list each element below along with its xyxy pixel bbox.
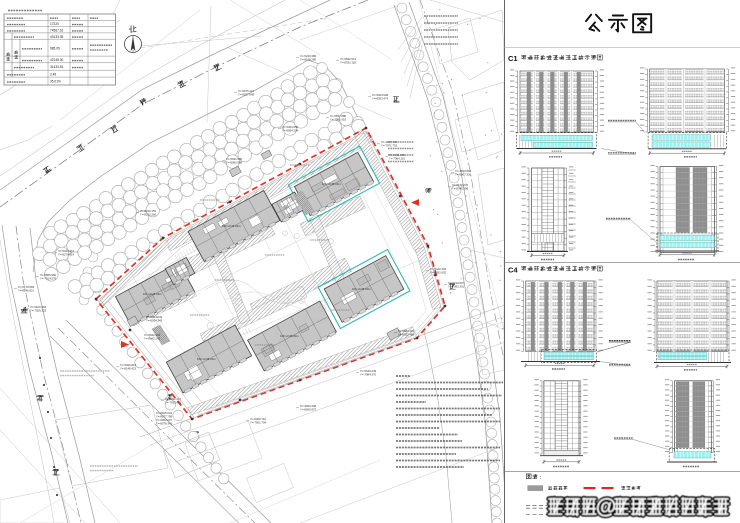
svg-text:Y=-8303.474: Y=-8303.474 bbox=[372, 96, 389, 100]
svg-text:Y=-7981.916: Y=-7981.916 bbox=[330, 117, 347, 121]
svg-text:Y=-8279.914: Y=-8279.914 bbox=[58, 252, 75, 256]
svg-text:Y=-7933.463: Y=-7933.463 bbox=[165, 400, 182, 404]
svg-text:16F H=45.00m: 16F H=45.00m bbox=[222, 224, 241, 228]
svg-text:Y=-8346.396: Y=-8346.396 bbox=[452, 186, 469, 190]
svg-text:Y=-7929.123: Y=-7929.123 bbox=[30, 308, 47, 312]
svg-text:Y=-7964.101: Y=-7964.101 bbox=[389, 156, 406, 160]
svg-text:Y=-8007.320: Y=-8007.320 bbox=[455, 172, 472, 176]
svg-text:Y=-8042.243: Y=-8042.243 bbox=[144, 336, 161, 340]
svg-text:16F H=45.00m: 16F H=45.00m bbox=[143, 292, 162, 296]
svg-text:Y=-8090.989: Y=-8090.989 bbox=[226, 160, 243, 164]
svg-text:2.45: 2.45 bbox=[50, 72, 56, 76]
svg-text:74567.16: 74567.16 bbox=[50, 29, 64, 33]
svg-text:Y=-8069.937: Y=-8069.937 bbox=[300, 407, 317, 411]
svg-text:Y=-7971.732: Y=-7971.732 bbox=[381, 143, 398, 147]
svg-text:Y=-7914.576: Y=-7914.576 bbox=[40, 276, 57, 280]
svg-text:Y=-8146.821: Y=-8146.821 bbox=[18, 288, 35, 292]
svg-text:Y=-7993.301: Y=-7993.301 bbox=[448, 284, 465, 288]
svg-text:Y=-8108.286: Y=-8108.286 bbox=[300, 57, 317, 61]
svg-text:17220: 17220 bbox=[50, 22, 59, 26]
svg-text:985.05: 985.05 bbox=[50, 46, 60, 50]
svg-text:16F H=45.00m: 16F H=45.00m bbox=[280, 334, 299, 338]
svg-text:Y=-8232.260: Y=-8232.260 bbox=[140, 212, 157, 216]
svg-text:Y=-8052.469: Y=-8052.469 bbox=[398, 332, 415, 336]
svg-text:Y=-8146.423: Y=-8146.423 bbox=[120, 366, 137, 370]
svg-text:16F H=45.00m: 16F H=45.00m bbox=[352, 287, 371, 291]
svg-text:35.01%: 35.01% bbox=[50, 80, 61, 84]
svg-text:Y=-8094.204: Y=-8094.204 bbox=[282, 128, 299, 132]
svg-text:Y=-8392.652: Y=-8392.652 bbox=[430, 270, 447, 274]
svg-text:Y=-8027.848: Y=-8027.848 bbox=[238, 92, 255, 96]
svg-text:C1: C1 bbox=[508, 54, 518, 63]
svg-text:C4: C4 bbox=[508, 266, 518, 275]
svg-text:Y=-8078.341: Y=-8078.341 bbox=[156, 421, 173, 425]
svg-text:16F H=45.00m: 16F H=45.00m bbox=[197, 357, 216, 361]
svg-text:31433.81: 31433.81 bbox=[50, 65, 64, 69]
svg-text:Y=-8332.118: Y=-8332.118 bbox=[340, 60, 356, 64]
svg-text:43133.35: 43133.35 bbox=[50, 35, 64, 39]
svg-text:Y=-8034.343: Y=-8034.343 bbox=[146, 318, 163, 322]
svg-text:Y=-7901.794: Y=-7901.794 bbox=[250, 420, 267, 424]
svg-text:Y=-7984.370: Y=-7984.370 bbox=[360, 372, 377, 376]
svg-text:@: @ bbox=[596, 496, 616, 519]
svg-text:42148.30: 42148.30 bbox=[50, 58, 64, 62]
svg-text:16F H=45.00m: 16F H=45.00m bbox=[322, 182, 341, 186]
